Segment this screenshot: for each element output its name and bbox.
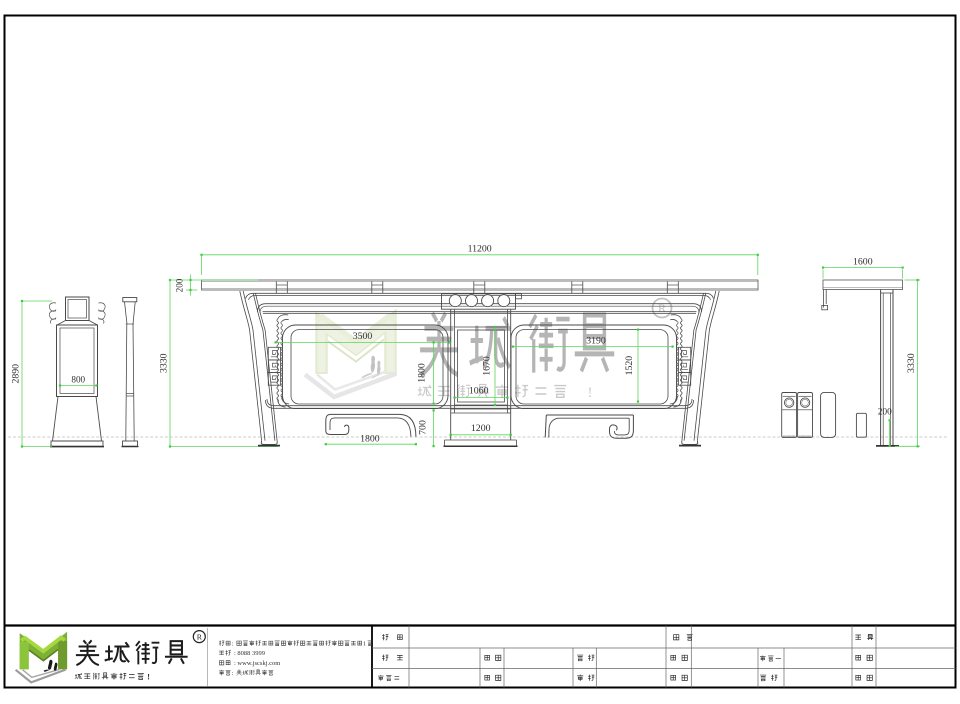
svg-text:200: 200 [175,278,185,292]
svg-text:11200: 11200 [468,244,492,255]
svg-text:3190: 3190 [586,335,606,346]
svg-text:3330: 3330 [159,353,170,373]
svg-text:: www.jscskj.com: : www.jscskj.com [234,660,280,667]
svg-text:: 8088 3999: : 8088 3999 [234,650,265,657]
svg-text:1: 1 [363,640,366,647]
svg-text:!: ! [147,672,150,682]
svg-text:700: 700 [417,420,428,435]
svg-text:1600: 1600 [853,256,873,267]
svg-text:1670: 1670 [481,356,492,376]
svg-text:3330: 3330 [906,353,917,373]
svg-text:200: 200 [878,407,892,417]
svg-text:800: 800 [71,374,85,384]
svg-text:1200: 1200 [471,423,491,434]
svg-text:1800: 1800 [417,363,428,383]
svg-text:R: R [197,632,203,641]
svg-text:!: ! [588,385,593,401]
svg-text:1800: 1800 [360,433,380,444]
svg-text::: : [232,640,234,647]
svg-text:1520: 1520 [624,356,635,376]
svg-text:1060: 1060 [469,386,489,397]
svg-text::: : [232,670,234,677]
svg-text:2890: 2890 [11,364,22,384]
svg-text:3500: 3500 [353,331,373,342]
